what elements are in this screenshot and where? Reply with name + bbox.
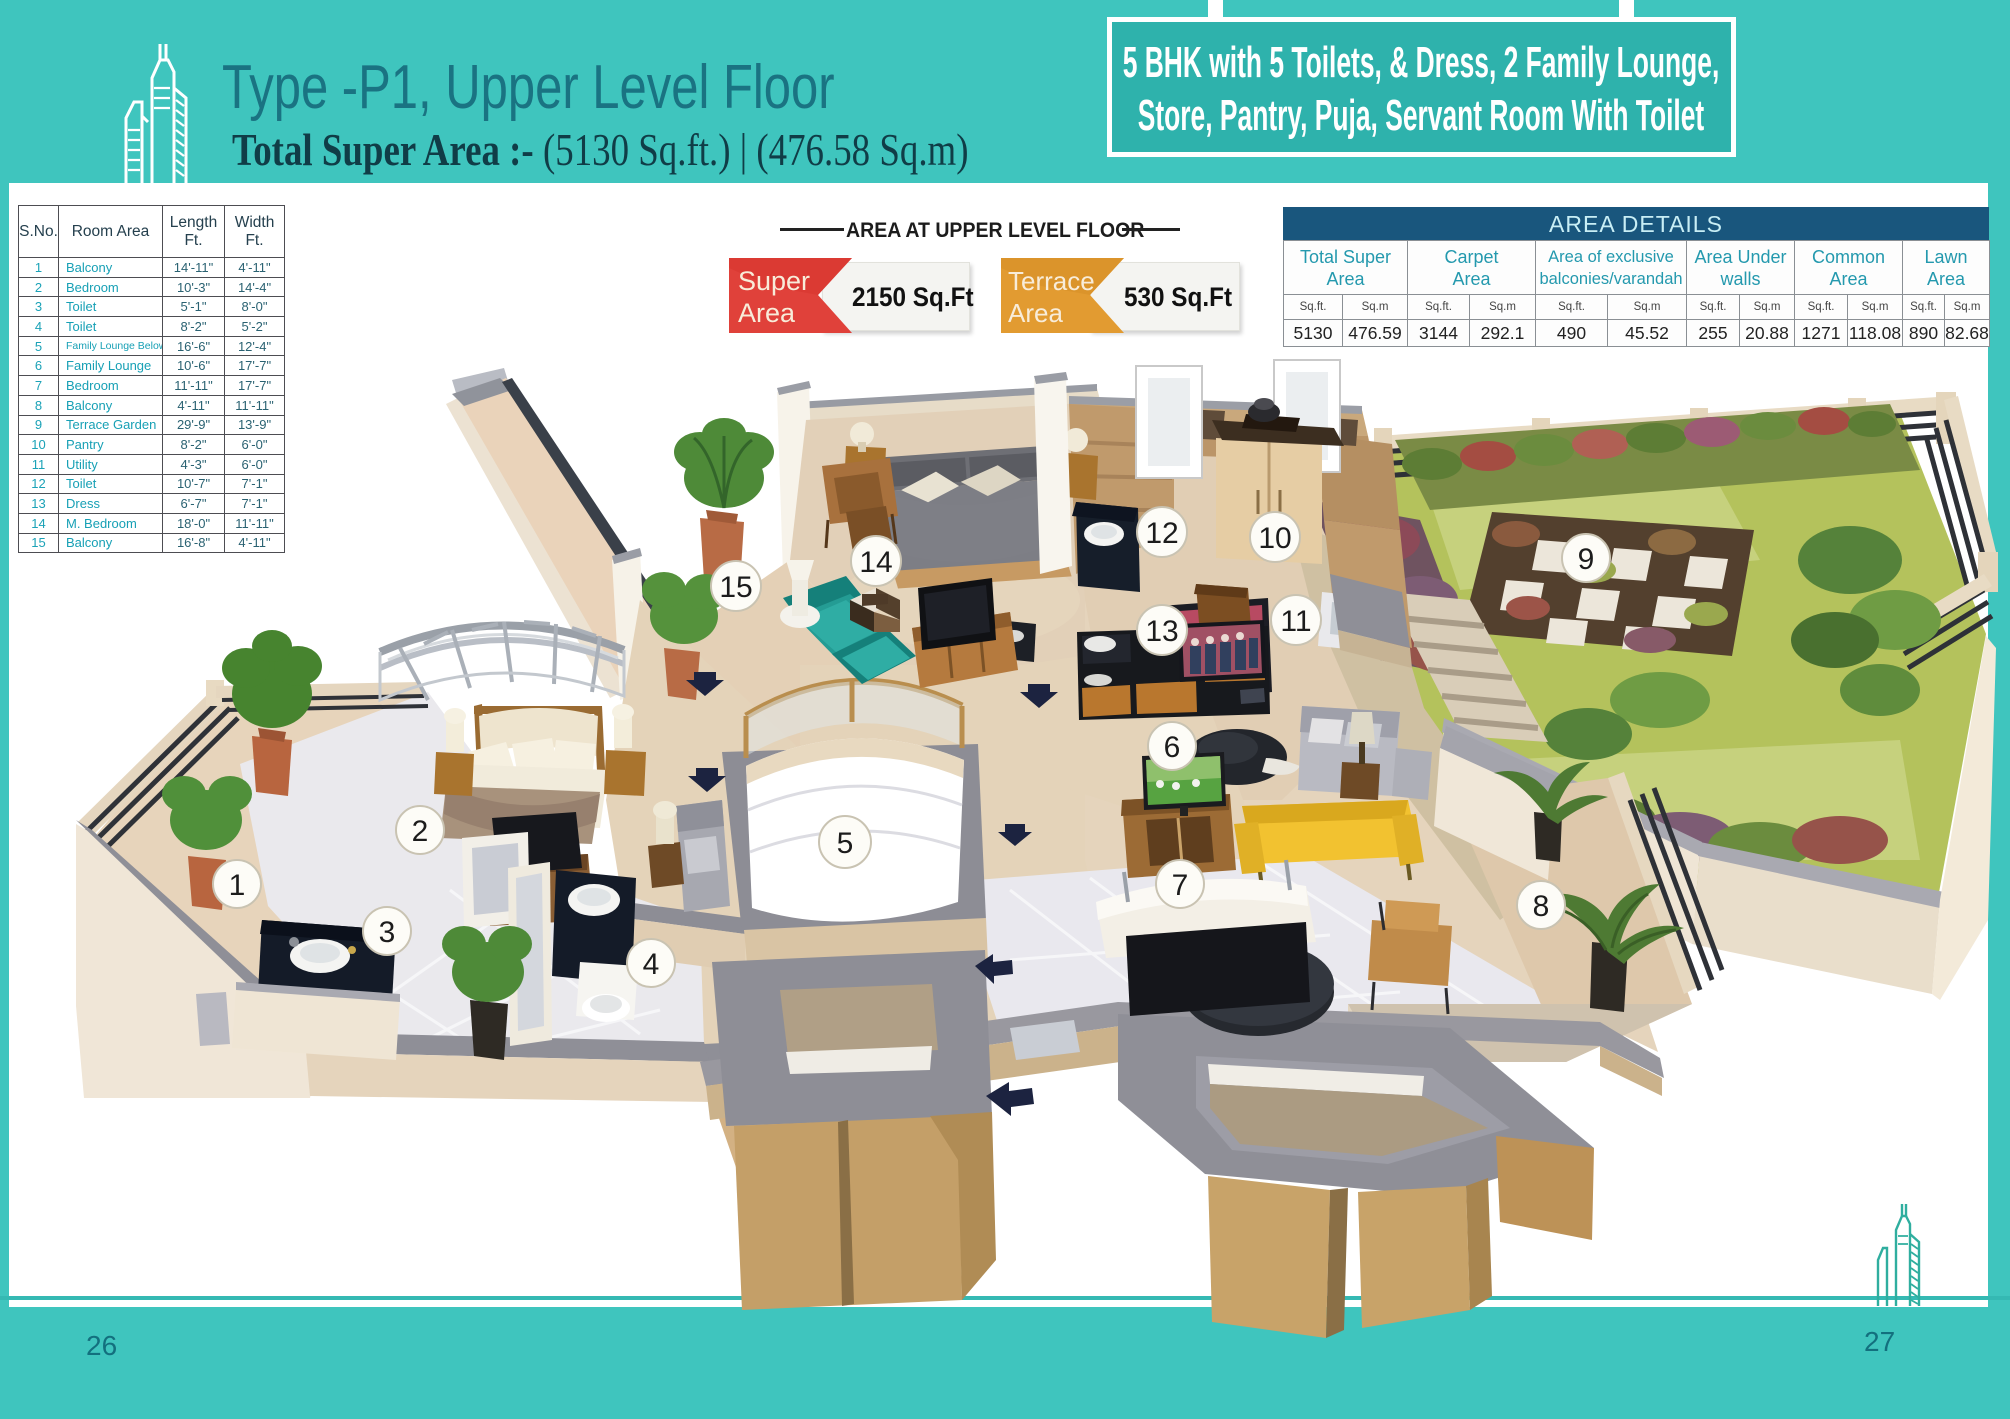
- svg-text:13: 13: [1145, 615, 1178, 648]
- svg-text:11: 11: [1280, 605, 1311, 638]
- svg-text:8: 8: [1533, 890, 1550, 923]
- svg-text:10: 10: [1258, 522, 1291, 555]
- svg-text:12: 12: [1145, 517, 1178, 550]
- svg-text:9: 9: [1578, 543, 1595, 576]
- svg-text:2: 2: [412, 815, 429, 848]
- svg-text:15: 15: [719, 571, 752, 604]
- svg-text:1: 1: [229, 869, 246, 902]
- svg-text:7: 7: [1172, 869, 1189, 902]
- svg-text:3: 3: [379, 916, 396, 949]
- svg-text:4: 4: [643, 948, 660, 981]
- svg-text:5: 5: [837, 827, 854, 860]
- svg-text:14: 14: [859, 546, 892, 579]
- svg-text:6: 6: [1164, 731, 1181, 764]
